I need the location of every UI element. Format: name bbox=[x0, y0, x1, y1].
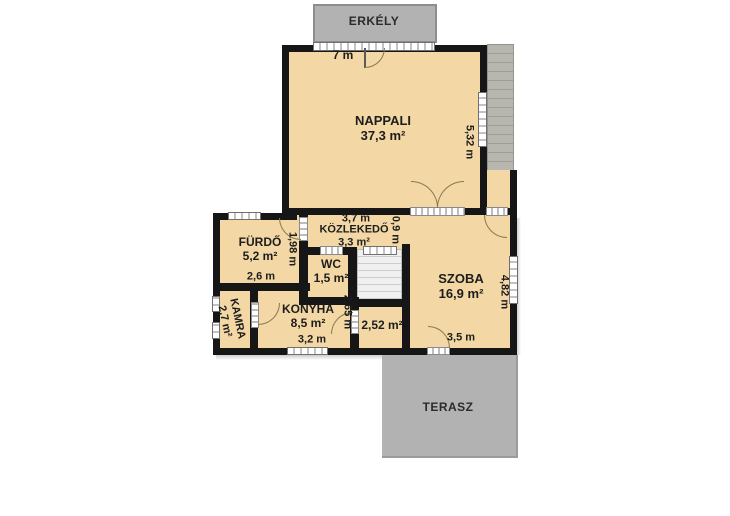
room-name-nappali: NAPPALI bbox=[355, 114, 411, 129]
room-label-storage: 2,52 m² bbox=[361, 319, 402, 333]
balcony-label: ERKÉLY bbox=[349, 15, 400, 29]
room-name-furdo: FÜRDŐ bbox=[239, 236, 282, 250]
nappali-double-door bbox=[410, 207, 465, 216]
dim-konyha-width: 3,2 m bbox=[298, 334, 326, 347]
room-area-konyha: 8,5 m² bbox=[282, 317, 334, 331]
room-name-konyha: KONYHA bbox=[282, 303, 334, 317]
dim-balcony-front: 7 m bbox=[333, 49, 354, 63]
wall-nappali-left bbox=[282, 45, 289, 215]
dim-kozlekedo-width: 0,9 m bbox=[389, 216, 402, 244]
room-area-storage: 2,52 m² bbox=[361, 319, 402, 333]
wall-nappali-bottom bbox=[282, 208, 517, 215]
room-name-szoba: SZOBA bbox=[438, 272, 484, 287]
room-area-szoba: 16,9 m² bbox=[438, 287, 484, 302]
room-label-furdo: FÜRDŐ 5,2 m² bbox=[239, 236, 282, 264]
terrace-door bbox=[427, 347, 450, 355]
dim-szoba-width: 3,5 m bbox=[447, 332, 475, 345]
room-area-kozlekedo: 3,3 m² bbox=[319, 236, 388, 249]
room-label-szoba: SZOBA 16,9 m² bbox=[438, 272, 484, 302]
room-area-furdo: 5,2 m² bbox=[239, 250, 282, 264]
room-label-konyha: KONYHA 8,5 m² bbox=[282, 303, 334, 331]
wall-furdo-bottom bbox=[213, 283, 310, 291]
dim-szoba-depth: 4,82 m bbox=[498, 275, 511, 309]
dim-konyha-depth: 2,65 m bbox=[341, 295, 354, 329]
wall-storage-top bbox=[357, 299, 410, 307]
room-label-kozlekedo: KÖZLEKEDŐ 3,3 m² bbox=[319, 223, 388, 248]
terrace-label: TERASZ bbox=[423, 401, 474, 415]
konyha-window bbox=[287, 347, 328, 355]
dim-kozlekedo-length: 3,7 m bbox=[342, 213, 370, 226]
szoba-window bbox=[509, 256, 518, 304]
room-label-wc: WC 1,5 m² bbox=[314, 258, 349, 286]
wall-bottom-outer bbox=[213, 348, 517, 355]
room-label-nappali: NAPPALI 37,3 m² bbox=[355, 114, 411, 144]
room-area-nappali: 37,3 m² bbox=[355, 129, 411, 144]
dim-furdo-width: 2,6 m bbox=[247, 271, 275, 284]
interior-stairs bbox=[357, 249, 402, 301]
room-name-wc: WC bbox=[314, 258, 349, 272]
dim-nappali-depth: 5,32 m bbox=[463, 125, 476, 159]
shadow-bottom bbox=[216, 355, 382, 360]
room-area-wc: 1,5 m² bbox=[314, 272, 349, 286]
floor-plan: ERKÉLY TERASZ NAPPALI 37,3 m² FÜRDŐ 5,2 … bbox=[0, 0, 730, 516]
nappali-side-window bbox=[478, 92, 487, 147]
dim-furdo-depth: 1,98 m bbox=[286, 232, 299, 266]
furdo-window bbox=[228, 212, 261, 220]
exterior-stairs bbox=[487, 44, 514, 172]
